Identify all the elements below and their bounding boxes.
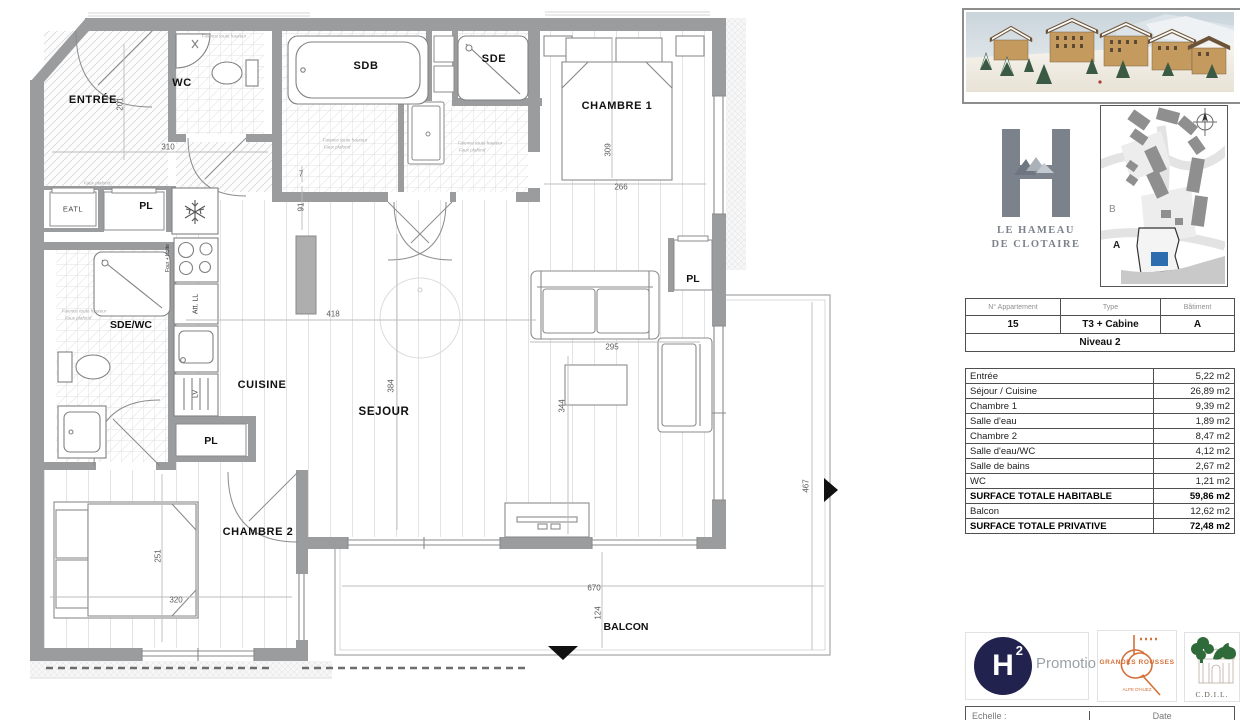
dim-entree-w: 310 [161, 143, 174, 152]
dim-ch1-w: 266 [614, 183, 627, 192]
room-label-sde-wc: SDE/WC [110, 319, 152, 331]
site-map-drawing [1101, 106, 1225, 284]
annotation-faux-plafond: Faux plafond [324, 145, 351, 150]
surface-row: WC1,21 m2 [966, 474, 1235, 489]
annotation-faience: Faience toute hauteur [62, 309, 107, 314]
room-label-sejour: SEJOUR [359, 406, 410, 418]
surface-row: Entrée5,22 m2 [966, 369, 1235, 384]
appliance-label-att-ll: Att. LL [193, 294, 200, 314]
surface-row-label: Balcon [966, 504, 1154, 519]
dim-wall-b: 91 [297, 203, 306, 212]
map-building-a-label: A [1113, 240, 1120, 251]
site-map: B A [1100, 105, 1228, 287]
info-header-batiment: Bâtiment [1161, 299, 1235, 316]
surface-row-value: 4,12 m2 [1154, 444, 1235, 459]
surface-table-body: Entrée5,22 m2Séjour / Cuisine26,89 m2Cha… [966, 369, 1235, 534]
unit-highlight [1151, 252, 1168, 266]
h2-superscript: 2 [1016, 643, 1023, 658]
closet-label-pl-entree: PL [139, 200, 152, 212]
surface-row-label: Salle de bains [966, 459, 1154, 474]
dim-entree-h: 201 [116, 97, 125, 110]
room-label-cuisine: CUISINE [238, 379, 287, 391]
chalet-scene [966, 12, 1234, 92]
surface-row: Balcon12,62 m2 [966, 504, 1235, 519]
surface-row-value: 1,21 m2 [1154, 474, 1235, 489]
closet-label-eatl: EATL [63, 205, 83, 214]
project-title-line1: LE HAMEAU [985, 225, 1087, 236]
project-photo [962, 8, 1240, 104]
h2-letter: H [992, 649, 1014, 682]
surface-row-value: 12,62 m2 [1154, 504, 1235, 519]
dim-sofa-w: 295 [605, 343, 618, 352]
room-label-chambre1: CHAMBRE 1 [582, 100, 653, 112]
dim-ch1-h: 309 [604, 143, 613, 156]
surface-row-value: 5,22 m2 [1154, 369, 1235, 384]
surface-row-value: 1,89 m2 [1154, 414, 1235, 429]
cdi-mark [1185, 633, 1239, 687]
surface-row: SURFACE TOTALE HABITABLE59,86 m2 [966, 489, 1235, 504]
info-value-appartement: 15 [966, 316, 1061, 334]
info-value-batiment: A [1161, 316, 1235, 334]
appliance-label-four-hotte: Four + Hotte [165, 244, 171, 272]
room-label-sde: SDE [482, 53, 506, 65]
surface-row-label: Séjour / Cuisine [966, 384, 1154, 399]
entrance-arrow-down [548, 646, 578, 660]
plan-sheet: ENTRÉE 201 310 WC Faience toute hauteur … [0, 0, 1240, 720]
surface-row-label: WC [966, 474, 1154, 489]
room-label-balcon: BALCON [604, 621, 649, 633]
scale-label: Echelle : [972, 711, 1007, 720]
annotation-faux-plafond: Faux plafond [84, 181, 111, 186]
h2-promotion-logo: H 2 Promotion [965, 632, 1089, 700]
surface-row-label: Salle d'eau [966, 414, 1154, 429]
surface-row-value: 59,86 m2 [1154, 489, 1235, 504]
project-title-line2: DE CLOTAIRE [985, 239, 1087, 250]
map-building-b-label: B [1109, 204, 1116, 215]
entrance-arrow-right [824, 478, 838, 502]
room-label-entree: ENTRÉE [69, 94, 117, 106]
surface-row-label: Chambre 1 [966, 399, 1154, 414]
surface-row-value: 9,39 m2 [1154, 399, 1235, 414]
annotation-faux-plafond: Faux plafond [65, 316, 92, 321]
title-block-footer: Echelle : Date [965, 706, 1235, 720]
annotation-faience: Faience toute hauteur [202, 34, 247, 39]
cdi-logo: C.D.I.L. [1184, 632, 1240, 702]
surface-row-label: Entrée [966, 369, 1154, 384]
apartment-info-table: N° Appartement Type Bâtiment 15 T3 + Cab… [965, 298, 1235, 352]
surface-row-label: Salle d'eau/WC [966, 444, 1154, 459]
promotion-label: Promotion [1036, 655, 1104, 672]
surface-row-value: 26,89 m2 [1154, 384, 1235, 399]
room-label-sdb: SDB [353, 60, 378, 72]
room-label-wc: WC [172, 77, 192, 89]
dim-balcon-h: 124 [594, 606, 603, 619]
dim-wall-a: 7 [299, 170, 303, 179]
surface-row: Salle d'eau1,89 m2 [966, 414, 1235, 429]
dim-ch2-w: 320 [169, 596, 182, 605]
h2-circle: H 2 [974, 637, 1032, 695]
info-value-type: T3 + Cabine [1061, 316, 1161, 334]
surface-row-label: SURFACE TOTALE PRIVATIVE [966, 519, 1154, 534]
alpe-dhuez-label: ALPE D'HUEZ [1098, 687, 1176, 692]
closet-label-pl-chambre2: PL [204, 435, 217, 447]
dim-ch2-h: 251 [154, 549, 163, 562]
surface-table: Entrée5,22 m2Séjour / Cuisine26,89 m2Cha… [965, 368, 1235, 534]
appliance-label-lv: LV [193, 390, 200, 398]
surface-row-value: 72,48 m2 [1154, 519, 1235, 534]
dim-sejour-h: 384 [387, 379, 396, 392]
dim-sejour-h2: 344 [558, 399, 567, 412]
info-header-type: Type [1061, 299, 1161, 316]
dim-sejour-w: 418 [326, 310, 339, 319]
surface-row: Chambre 28,47 m2 [966, 429, 1235, 444]
surface-row: Salle d'eau/WC4,12 m2 [966, 444, 1235, 459]
surface-row: Chambre 19,39 m2 [966, 399, 1235, 414]
hameau-logo [988, 125, 1086, 221]
info-level: Niveau 2 [966, 334, 1235, 352]
dim-balcon-side: 467 [802, 479, 811, 492]
surface-row: Séjour / Cuisine26,89 m2 [966, 384, 1235, 399]
cdi-label: C.D.I.L. [1185, 690, 1239, 699]
info-header-appartement: N° Appartement [966, 299, 1061, 316]
room-label-chambre2: CHAMBRE 2 [223, 526, 294, 538]
surface-row-value: 2,67 m2 [1154, 459, 1235, 474]
surface-row: Salle de bains2,67 m2 [966, 459, 1235, 474]
annotation-faience: Faience toute hauteur [458, 141, 503, 146]
closet-label-pl-sejour: PL [686, 273, 699, 285]
surface-row-value: 8,47 m2 [1154, 429, 1235, 444]
surface-row: SURFACE TOTALE PRIVATIVE72,48 m2 [966, 519, 1235, 534]
grandes-rousses-logo: GRANDES ROUSSES ALPE D'HUEZ [1097, 630, 1177, 702]
grandes-rousses-label: GRANDES ROUSSES [1098, 659, 1176, 666]
annotation-faience: Faience toute hauteur [323, 138, 368, 143]
floorplan-drawing [0, 0, 950, 720]
surface-row-label: SURFACE TOTALE HABITABLE [966, 489, 1154, 504]
surface-row-label: Chambre 2 [966, 429, 1154, 444]
dim-balcon-w: 670 [587, 584, 600, 593]
date-label: Date [1089, 711, 1234, 720]
annotation-faux-plafond: Faux plafond [459, 148, 486, 153]
